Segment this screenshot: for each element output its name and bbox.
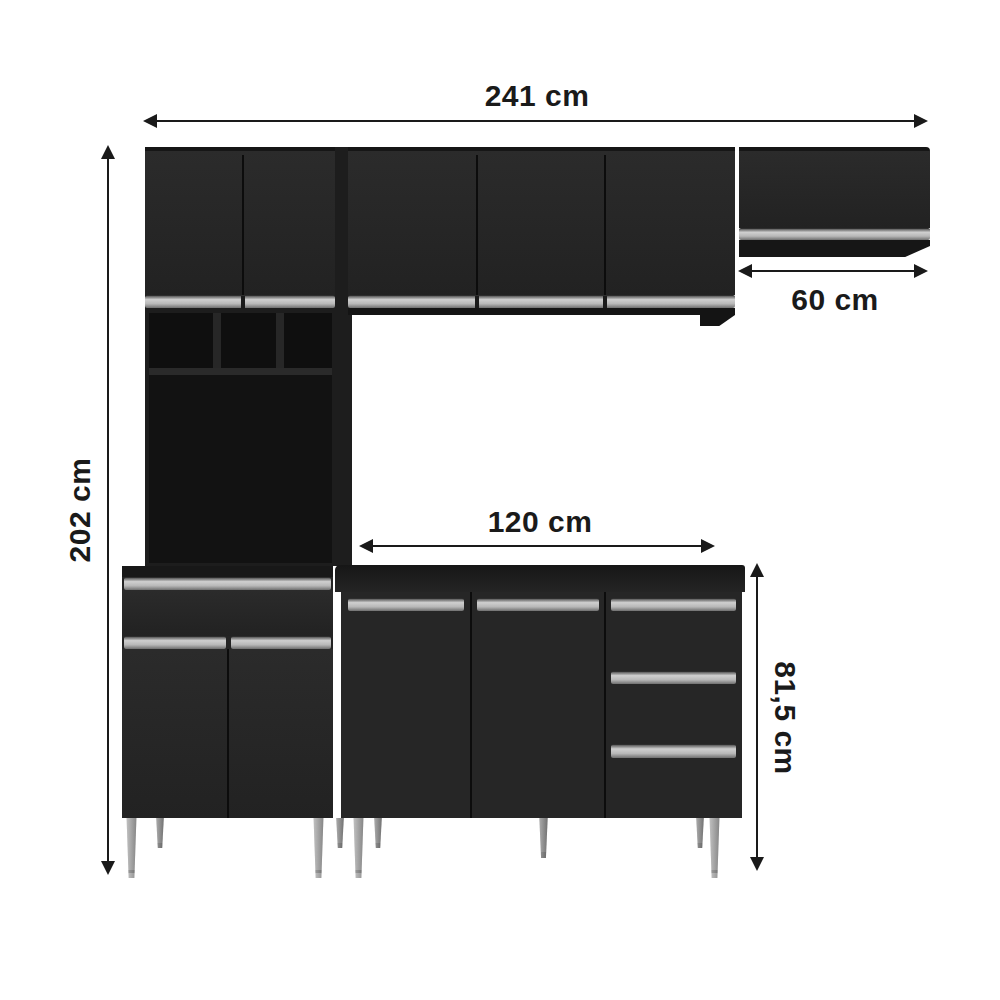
wall-cabinet-door-divider [476,155,478,295]
counter-drawer-1-handle-strip [611,598,736,611]
tall-cabinet-drawer-handle-strip [124,577,331,590]
niche-divider [276,313,284,368]
cabinet-leg [155,818,165,848]
tall-cabinet-base-doors [122,649,333,818]
tall-cabinet-niche-row [149,313,332,368]
dimension-line-upper-right-width [738,264,928,278]
wall-cabinet-bottom-corner [700,315,735,326]
counter-drawer-3-handle-strip [611,744,736,758]
dimension-line [368,545,706,547]
cabinet-leg [335,818,345,848]
arrowhead-right-icon [914,114,928,128]
counter-right-door-handle-strip [477,598,599,611]
arrowhead-right-icon [914,264,928,278]
tall-cabinet-upper-door-divider [242,155,244,295]
cabinet-leg [352,818,365,878]
dimension-line [747,270,919,272]
counter-door-divider [604,592,606,818]
dimension-line [107,154,109,866]
cabinet-leg [312,818,325,878]
tall-cabinet-upper-doors [145,147,335,295]
arrowhead-right-icon [701,539,715,553]
dimension-label-total-height: 202 cm [62,440,98,580]
tall-cabinet-drawer-face [122,590,333,636]
tall-cabinet-right-door-handle-strip [231,636,331,649]
dimension-line [756,572,758,862]
counter-drawer-2-handle-strip [611,671,736,684]
wall-cabinet-door-divider [604,155,606,295]
product-dimension-diagram: 241 cm 202 cm 60 cm 120 cm 81,5 cm [0,0,1000,1000]
tall-cabinet-left-door-handle-strip [124,636,226,649]
wall-cabinet-handle-strip [348,295,735,308]
dimension-line-total-width [143,114,928,128]
counter-cabinet-body [341,592,742,818]
tall-cabinet-base-door-divider [227,649,229,818]
wall-cabinet-doors [348,147,735,295]
strip-notch [241,296,245,309]
right-wall-cabinet-handle-strip [739,228,930,240]
dimension-line [152,120,919,122]
cabinet-leg [125,818,138,878]
countertop [335,565,745,592]
tall-cabinet-microwave-niche [149,375,332,563]
cabinet-leg [695,818,705,848]
tall-cabinet-upper-handle-strip [145,295,335,308]
dimension-label-upper-right-width: 60 cm [755,282,915,318]
tall-cabinet-base-top-edge [122,566,333,577]
cabinet-leg [708,818,721,878]
cabinet-leg [538,818,549,858]
arrowhead-down-icon [750,857,764,871]
counter-left-door-handle-strip [348,598,464,611]
dimension-label-total-width: 241 cm [437,78,637,114]
dimension-line-total-height [101,145,115,875]
dimension-line-counter-height [750,563,764,871]
dimension-label-counter-width: 120 cm [440,504,640,540]
counter-door-divider [470,592,472,818]
arrowhead-down-icon [101,861,115,875]
right-wall-cabinet-door [739,147,930,228]
niche-divider [213,313,221,368]
cabinet-leg [373,818,383,848]
dimension-label-counter-height: 81,5 cm [767,633,803,803]
wall-cabinet-bottom-edge [348,308,735,315]
dimension-line-counter-width [359,539,715,553]
right-wall-cabinet-bottom-edge [739,240,930,257]
tall-cabinet-shelf [149,368,332,375]
